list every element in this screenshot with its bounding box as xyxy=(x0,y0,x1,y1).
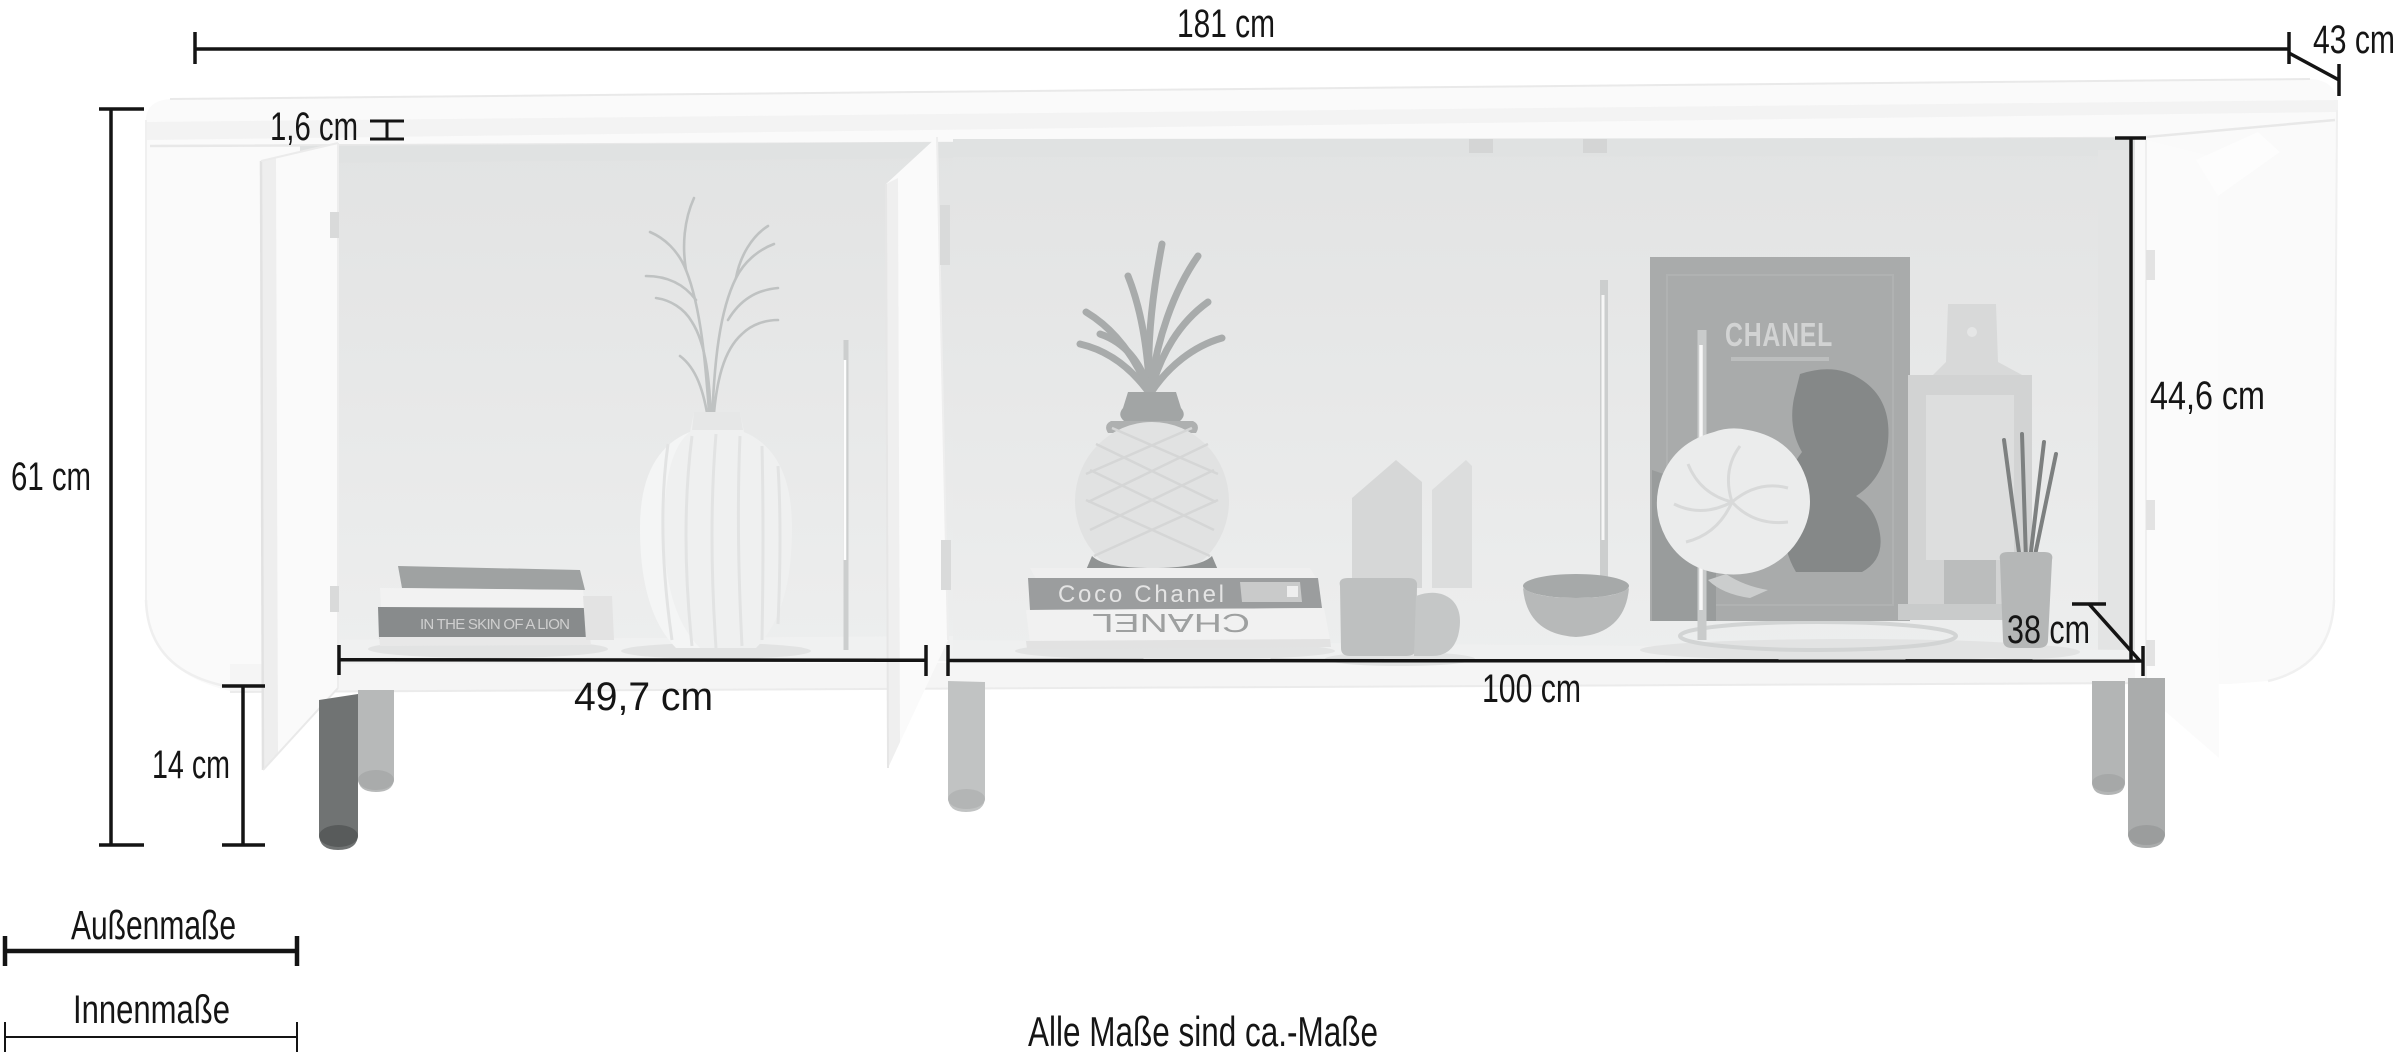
svg-text:181 cm: 181 cm xyxy=(1177,2,1275,46)
svg-text:Innenmaße: Innenmaße xyxy=(73,988,230,1032)
svg-text:43 cm: 43 cm xyxy=(2313,18,2395,62)
svg-text:38 cm: 38 cm xyxy=(2007,608,2090,652)
svg-text:IN THE SKIN OF A LION: IN THE SKIN OF A LION xyxy=(420,616,570,633)
svg-text:Coco Chanel: Coco Chanel xyxy=(1058,581,1224,608)
svg-text:CHANEL: CHANEL xyxy=(1092,608,1250,638)
svg-text:44,6 cm: 44,6 cm xyxy=(2150,374,2265,418)
svg-text:14 cm: 14 cm xyxy=(152,743,230,787)
svg-text:1,6 cm: 1,6 cm xyxy=(270,105,358,149)
svg-text:49,7 cm: 49,7 cm xyxy=(574,675,713,719)
svg-text:61 cm: 61 cm xyxy=(11,455,91,499)
svg-text:100 cm: 100 cm xyxy=(1482,667,1581,711)
svg-text:Alle Maße sind ca.-Maße: Alle Maße sind ca.-Maße xyxy=(1028,1008,1378,1055)
svg-text:Außenmaße: Außenmaße xyxy=(71,902,236,948)
svg-text:CHANEL: CHANEL xyxy=(1725,316,1833,353)
